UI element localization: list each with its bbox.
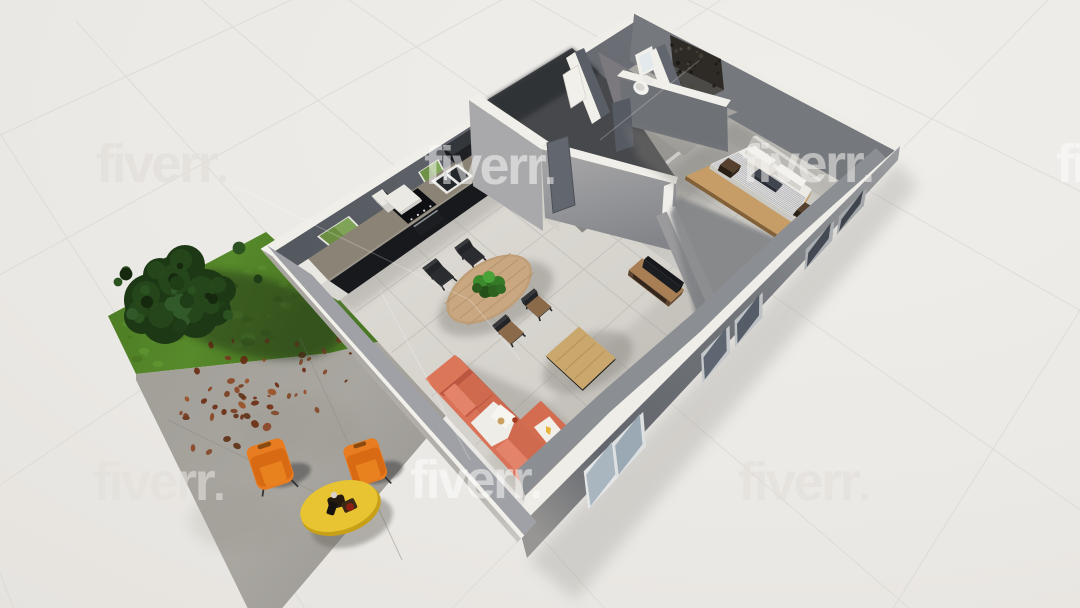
svg-text:fiverr.: fiverr. — [1056, 134, 1080, 194]
svg-text:fiverr.: fiverr. — [424, 136, 554, 196]
svg-text:fiverr.: fiverr. — [742, 134, 872, 194]
svg-text:fiverr.: fiverr. — [410, 450, 540, 510]
svg-text:fiverr.: fiverr. — [738, 452, 868, 512]
svg-text:fiverr.: fiverr. — [93, 452, 223, 512]
svg-text:fiverr.: fiverr. — [96, 134, 226, 194]
